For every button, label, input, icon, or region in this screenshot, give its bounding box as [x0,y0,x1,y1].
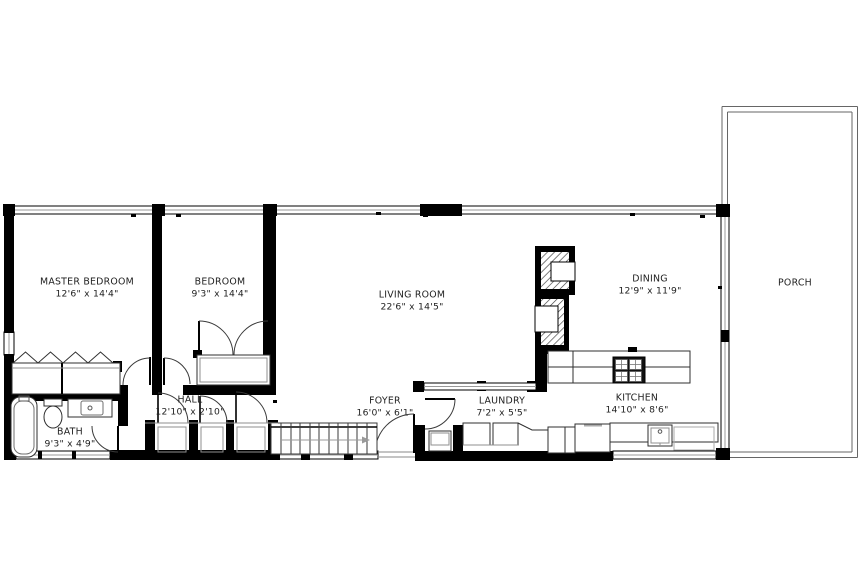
stairs [271,423,377,454]
refrigerator [575,424,610,452]
room-label-kitchen: KITCHEN 14'10" x 8'6" [605,393,668,416]
room-name: FOYER [356,396,413,408]
room-name: LAUNDRY [477,396,528,408]
kitchen-counter [575,423,718,452]
toilet [44,399,62,428]
room-name: BATH [45,427,96,439]
room-dims: 9'3" x 4'9" [45,438,96,450]
room-dims: 14'10" x 8'6" [605,404,668,416]
room-dims: 16'0" x 6'1" [356,407,413,419]
room-dims: 22'6" x 14'5" [379,301,446,313]
vanity-sink [68,399,112,417]
bifold-door-zigzag [13,352,113,363]
fireplace [535,246,575,354]
room-name: PORCH [778,277,812,289]
walls [3,204,730,461]
room-label-living-room: LIVING ROOM 22'6" x 14'5" [379,290,446,313]
room-label-master-bedroom: MASTER BEDROOM 12'6" x 14'4" [40,277,134,300]
room-dims: 12'9" x 11'9" [618,285,681,297]
laundry-partition [424,383,536,390]
room-label-porch: PORCH [778,277,812,289]
room-name: HALL [155,395,224,407]
windows [4,206,729,460]
washer [463,423,490,445]
floor-plan-canvas: MASTER BEDROOM 12'6" x 14'4" BEDROOM 9'3… [0,0,864,576]
room-label-laundry: LAUNDRY 7'2" x 5'5" [477,396,528,419]
stove [613,357,645,383]
laundry-appliances [463,423,575,453]
room-label-hall: HALL 12'10" x 2'10" [155,395,224,418]
room-label-dining: DINING 12'9" x 11'9" [618,274,681,297]
kitchen-island [548,347,690,383]
room-dims: 7'2" x 5'5" [477,407,528,419]
room-label-foyer: FOYER 16'0" x 6'1" [356,396,413,419]
room-dims: 12'6" x 14'4" [40,288,134,300]
room-name: BEDROOM [191,277,248,289]
room-label-bedroom: BEDROOM 9'3" x 14'4" [191,277,248,300]
room-dims: 9'3" x 14'4" [191,288,248,300]
room-name: LIVING ROOM [379,290,446,302]
room-dims: 12'10" x 2'10" [155,406,224,418]
room-label-bath: BATH 9'3" x 4'9" [45,427,96,450]
room-name: KITCHEN [605,393,668,405]
room-name: MASTER BEDROOM [40,277,134,289]
kitchen-sink [648,425,672,446]
dryer [493,423,518,445]
room-name: DINING [618,274,681,286]
bathtub [11,396,37,457]
